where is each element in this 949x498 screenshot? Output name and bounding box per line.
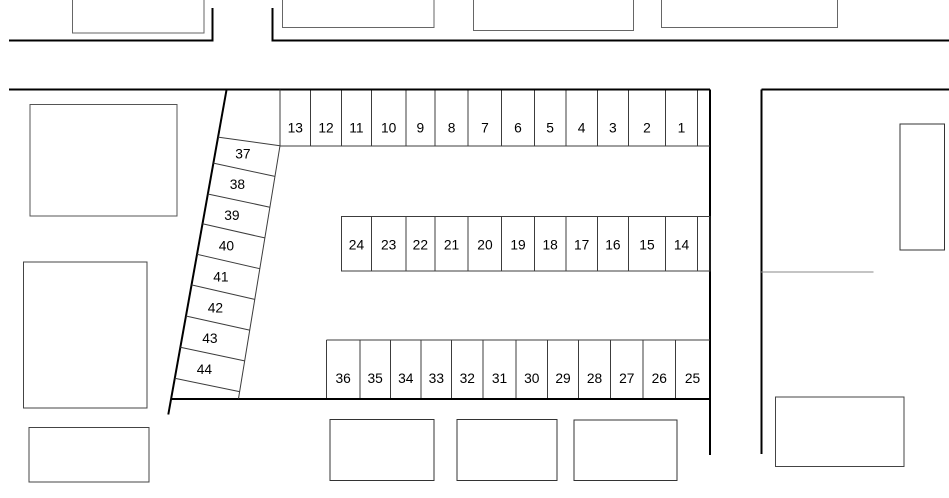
svg-text:6: 6: [514, 121, 522, 136]
svg-text:37: 37: [235, 146, 250, 161]
svg-text:24: 24: [349, 238, 365, 253]
svg-text:13: 13: [288, 121, 304, 136]
svg-text:23: 23: [381, 238, 397, 253]
svg-text:20: 20: [477, 238, 493, 253]
svg-text:7: 7: [481, 121, 489, 136]
svg-text:5: 5: [546, 121, 554, 136]
svg-text:9: 9: [417, 121, 425, 136]
svg-text:32: 32: [460, 371, 475, 386]
svg-text:29: 29: [555, 371, 571, 386]
svg-text:8: 8: [448, 121, 456, 136]
svg-text:15: 15: [639, 238, 655, 253]
svg-text:39: 39: [224, 208, 240, 223]
svg-text:28: 28: [587, 371, 603, 386]
svg-text:27: 27: [619, 371, 634, 386]
svg-text:3: 3: [609, 121, 617, 136]
svg-text:44: 44: [197, 362, 213, 377]
svg-text:11: 11: [349, 121, 363, 136]
svg-text:1: 1: [678, 121, 686, 136]
svg-text:34: 34: [398, 371, 414, 386]
svg-text:19: 19: [510, 238, 526, 253]
svg-text:4: 4: [578, 121, 586, 136]
svg-text:26: 26: [652, 371, 668, 386]
svg-text:36: 36: [335, 371, 351, 386]
svg-text:2: 2: [643, 121, 651, 136]
svg-text:33: 33: [429, 371, 445, 386]
svg-text:21: 21: [444, 238, 459, 253]
svg-text:40: 40: [219, 239, 235, 254]
svg-text:38: 38: [230, 177, 246, 192]
svg-text:31: 31: [492, 371, 507, 386]
svg-text:18: 18: [542, 238, 558, 253]
svg-text:10: 10: [381, 121, 397, 136]
svg-text:43: 43: [202, 331, 218, 346]
svg-text:41: 41: [213, 270, 228, 285]
svg-text:42: 42: [208, 300, 223, 315]
svg-text:17: 17: [574, 238, 589, 253]
svg-text:35: 35: [367, 371, 383, 386]
svg-text:22: 22: [413, 238, 428, 253]
svg-text:25: 25: [685, 371, 701, 386]
svg-text:30: 30: [524, 371, 540, 386]
svg-text:12: 12: [318, 121, 333, 136]
svg-text:16: 16: [605, 238, 621, 253]
svg-text:14: 14: [674, 238, 690, 253]
